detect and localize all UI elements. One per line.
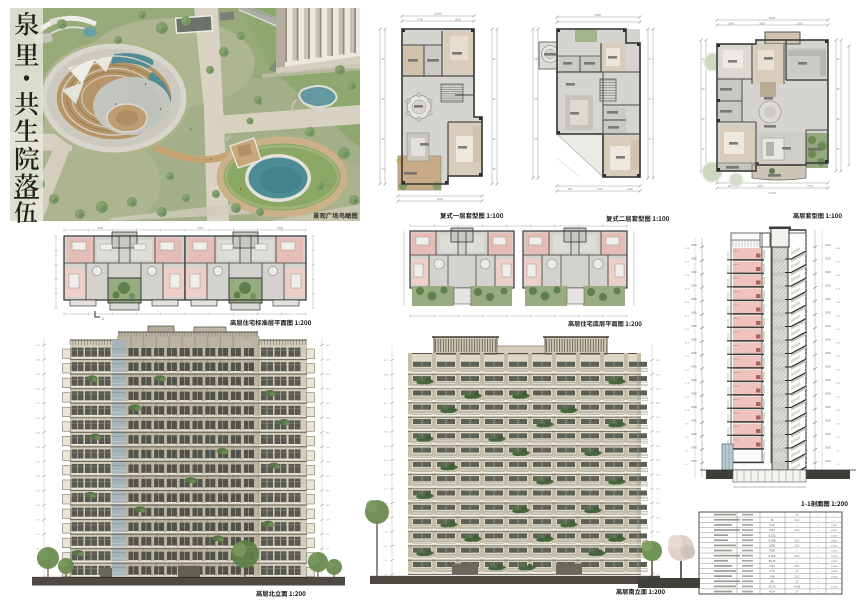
svg-text:20.5: 20.5 bbox=[685, 370, 690, 372]
svg-text:0.0651: 0.0651 bbox=[831, 546, 838, 548]
svg-text:23.2: 23.2 bbox=[795, 539, 800, 542]
svg-text:36: 36 bbox=[493, 57, 496, 61]
svg-text:35.0: 35.0 bbox=[326, 389, 331, 391]
svg-text:43.7: 43.7 bbox=[326, 345, 331, 347]
svg-text:43.7: 43.7 bbox=[685, 262, 690, 264]
svg-text:2900: 2900 bbox=[825, 270, 831, 274]
svg-text:8.9: 8.9 bbox=[685, 424, 689, 426]
svg-text:23.2: 23.2 bbox=[795, 575, 800, 578]
svg-text:14.7: 14.7 bbox=[36, 491, 41, 493]
svg-text:9800: 9800 bbox=[769, 16, 776, 20]
svg-text:37.9: 37.9 bbox=[656, 389, 661, 391]
svg-text:1.5420: 1.5420 bbox=[831, 576, 838, 578]
svg-text:2900: 2900 bbox=[691, 297, 697, 301]
svg-text:2900: 2900 bbox=[825, 284, 831, 288]
svg-text:2900: 2900 bbox=[691, 405, 697, 409]
svg-text:1: 1 bbox=[102, 317, 104, 321]
svg-text:23.4: 23.4 bbox=[326, 447, 331, 449]
svg-text:35.0: 35.0 bbox=[656, 403, 661, 405]
svg-text:23.2: 23.2 bbox=[795, 555, 800, 558]
svg-text:37.9: 37.9 bbox=[384, 389, 389, 391]
svg-text:36.45: 36.45 bbox=[769, 559, 776, 563]
svg-text:8.9: 8.9 bbox=[384, 532, 388, 534]
svg-text:14.7: 14.7 bbox=[685, 397, 690, 399]
svg-text:2900: 2900 bbox=[825, 311, 831, 315]
svg-text:43.7: 43.7 bbox=[836, 262, 841, 264]
svg-text:2900: 2900 bbox=[691, 270, 697, 274]
svg-text:29.2: 29.2 bbox=[836, 329, 841, 331]
svg-text:32.1: 32.1 bbox=[685, 316, 690, 318]
svg-text:36: 36 bbox=[837, 147, 840, 151]
svg-text:6.0: 6.0 bbox=[836, 437, 840, 439]
svg-text:23.4: 23.4 bbox=[836, 356, 841, 358]
svg-text:0.2: 0.2 bbox=[836, 464, 840, 466]
svg-text:8400: 8400 bbox=[437, 197, 444, 201]
svg-text:2900: 2900 bbox=[825, 365, 831, 369]
svg-text:8.9: 8.9 bbox=[836, 424, 840, 426]
svg-text:2900: 2900 bbox=[825, 446, 831, 450]
svg-text:46.6: 46.6 bbox=[836, 248, 841, 250]
svg-text:20.5: 20.5 bbox=[36, 461, 41, 463]
svg-text:1.5420: 1.5420 bbox=[831, 587, 838, 589]
svg-text:26.3: 26.3 bbox=[656, 446, 661, 448]
svg-text:8.9: 8.9 bbox=[36, 520, 40, 522]
svg-text:6.0: 6.0 bbox=[685, 437, 689, 439]
svg-text:14.7: 14.7 bbox=[656, 503, 661, 505]
svg-text:26.3: 26.3 bbox=[36, 432, 41, 434]
svg-text:17.6: 17.6 bbox=[656, 489, 661, 491]
svg-text:29.2: 29.2 bbox=[656, 432, 661, 434]
svg-text:3.1: 3.1 bbox=[326, 549, 330, 551]
svg-text:2900: 2900 bbox=[691, 459, 697, 463]
svg-text:6.0: 6.0 bbox=[384, 546, 388, 548]
svg-text:29.2: 29.2 bbox=[36, 418, 41, 420]
svg-text:26.3: 26.3 bbox=[384, 446, 389, 448]
svg-text:33.73: 33.73 bbox=[769, 585, 776, 589]
svg-text:3200: 3200 bbox=[277, 226, 284, 230]
svg-text:14400: 14400 bbox=[768, 191, 776, 195]
svg-text:2400: 2400 bbox=[728, 22, 734, 26]
svg-text:23.4: 23.4 bbox=[36, 447, 41, 449]
svg-text:11.8: 11.8 bbox=[685, 410, 690, 412]
svg-text:1.5420: 1.5420 bbox=[831, 571, 838, 573]
svg-text:37.9: 37.9 bbox=[36, 374, 41, 376]
svg-text:23.2: 23.2 bbox=[795, 519, 800, 522]
svg-text:15: 15 bbox=[771, 518, 774, 522]
svg-text:2900: 2900 bbox=[691, 365, 697, 369]
svg-text:46.6: 46.6 bbox=[685, 248, 690, 250]
svg-text:11.8: 11.8 bbox=[656, 517, 661, 519]
svg-text:40.8: 40.8 bbox=[685, 275, 690, 277]
svg-text:2900: 2900 bbox=[691, 378, 697, 382]
svg-text:17.6: 17.6 bbox=[685, 383, 690, 385]
svg-text:43.7: 43.7 bbox=[36, 345, 41, 347]
svg-text:2900: 2900 bbox=[691, 324, 697, 328]
svg-text:40.8: 40.8 bbox=[836, 275, 841, 277]
svg-text:33: 33 bbox=[702, 117, 705, 121]
svg-text:4200: 4200 bbox=[757, 184, 763, 188]
svg-text:33: 33 bbox=[702, 87, 705, 91]
svg-text:1.5420: 1.5420 bbox=[831, 551, 838, 553]
svg-text:7400: 7400 bbox=[97, 226, 104, 230]
svg-text:30: 30 bbox=[382, 97, 385, 101]
svg-text:6100: 6100 bbox=[434, 12, 441, 16]
svg-text:26.3: 26.3 bbox=[836, 343, 841, 345]
svg-text:2400: 2400 bbox=[627, 187, 633, 191]
svg-text:36: 36 bbox=[837, 87, 840, 91]
svg-text:1700: 1700 bbox=[417, 18, 424, 22]
svg-text:0.0651: 0.0651 bbox=[831, 530, 838, 532]
svg-text:40.8: 40.8 bbox=[384, 374, 389, 376]
svg-text:900: 900 bbox=[568, 187, 573, 191]
svg-text:2800: 2800 bbox=[759, 22, 765, 26]
svg-text:17: 17 bbox=[649, 137, 652, 141]
svg-text:28: 28 bbox=[535, 137, 538, 141]
svg-text:8400: 8400 bbox=[595, 13, 602, 17]
svg-text:26.3: 26.3 bbox=[685, 343, 690, 345]
svg-text:0.2: 0.2 bbox=[685, 464, 689, 466]
svg-text:2900: 2900 bbox=[691, 243, 697, 247]
svg-text:3.1: 3.1 bbox=[36, 549, 40, 551]
svg-text:7400: 7400 bbox=[197, 226, 204, 230]
svg-text:3600: 3600 bbox=[797, 22, 803, 26]
svg-text:0.0651: 0.0651 bbox=[831, 540, 838, 542]
svg-text:0.344: 0.344 bbox=[769, 554, 776, 558]
svg-text:2900: 2900 bbox=[691, 419, 697, 423]
svg-text:20.5: 20.5 bbox=[836, 370, 841, 372]
svg-text:35.0: 35.0 bbox=[384, 403, 389, 405]
svg-text:36: 36 bbox=[837, 117, 840, 121]
svg-text:30: 30 bbox=[382, 137, 385, 141]
svg-text:2900: 2900 bbox=[825, 243, 831, 247]
svg-text:6.94: 6.94 bbox=[769, 564, 775, 568]
svg-text:32.1: 32.1 bbox=[384, 417, 389, 419]
svg-text:37.9: 37.9 bbox=[326, 374, 331, 376]
svg-text:11.8: 11.8 bbox=[36, 505, 41, 507]
svg-text:36: 36 bbox=[493, 167, 496, 171]
svg-text:32.1: 32.1 bbox=[326, 403, 331, 405]
svg-text:40.8: 40.8 bbox=[656, 374, 661, 376]
svg-text:2900: 2900 bbox=[691, 257, 697, 261]
svg-text:36: 36 bbox=[493, 137, 496, 141]
svg-text:4.452: 4.452 bbox=[794, 586, 801, 589]
svg-text:2900: 2900 bbox=[825, 297, 831, 301]
svg-text:6.0: 6.0 bbox=[36, 534, 40, 536]
svg-text:2900: 2900 bbox=[691, 392, 697, 396]
svg-text:2900: 2900 bbox=[825, 257, 831, 261]
svg-text:2900: 2900 bbox=[825, 338, 831, 342]
svg-text:8.9: 8.9 bbox=[326, 520, 330, 522]
svg-text:17: 17 bbox=[649, 57, 652, 61]
svg-text:6.0: 6.0 bbox=[326, 534, 330, 536]
svg-text:2900: 2900 bbox=[825, 405, 831, 409]
svg-text:11.8: 11.8 bbox=[836, 410, 841, 412]
svg-text:35.0: 35.0 bbox=[36, 389, 41, 391]
svg-text:1.98: 1.98 bbox=[769, 574, 775, 578]
svg-text:43.7: 43.7 bbox=[384, 360, 389, 362]
svg-text:29.2: 29.2 bbox=[685, 329, 690, 331]
svg-text:3.1: 3.1 bbox=[384, 560, 388, 562]
svg-text:9.338: 9.338 bbox=[769, 538, 776, 542]
svg-text:2900: 2900 bbox=[825, 432, 831, 436]
svg-text:2900: 2900 bbox=[825, 459, 831, 463]
svg-text:6.502: 6.502 bbox=[831, 525, 837, 527]
svg-text:37.9: 37.9 bbox=[685, 289, 690, 291]
svg-text:5.252: 5.252 bbox=[769, 533, 776, 537]
svg-text:14.7: 14.7 bbox=[836, 397, 841, 399]
svg-text:42.4: 42.4 bbox=[769, 590, 775, 594]
svg-text:2900: 2900 bbox=[825, 324, 831, 328]
svg-text:0.73: 0.73 bbox=[769, 569, 775, 573]
svg-text:3.1: 3.1 bbox=[685, 451, 689, 453]
svg-text:2900: 2900 bbox=[691, 351, 697, 355]
svg-text:2296: 2296 bbox=[769, 544, 775, 548]
svg-text:7000: 7000 bbox=[769, 549, 775, 553]
svg-text:2900: 2900 bbox=[825, 378, 831, 382]
svg-text:35.0: 35.0 bbox=[685, 302, 690, 304]
svg-text:2900: 2900 bbox=[691, 338, 697, 342]
svg-text:2900: 2900 bbox=[691, 311, 697, 315]
svg-text:30: 30 bbox=[382, 167, 385, 171]
svg-text:29.2: 29.2 bbox=[384, 432, 389, 434]
svg-text:1.5420: 1.5420 bbox=[831, 561, 838, 563]
svg-text:2900: 2900 bbox=[691, 284, 697, 288]
svg-text:2900: 2900 bbox=[825, 392, 831, 396]
svg-text:26.3: 26.3 bbox=[326, 432, 331, 434]
svg-text:40.8: 40.8 bbox=[36, 360, 41, 362]
svg-text:28: 28 bbox=[535, 57, 538, 61]
svg-text:33: 33 bbox=[702, 147, 705, 151]
svg-text:2900: 2900 bbox=[691, 446, 697, 450]
svg-text:23.4: 23.4 bbox=[384, 460, 389, 462]
svg-text:40.8: 40.8 bbox=[326, 360, 331, 362]
svg-text:1.5420: 1.5420 bbox=[831, 556, 838, 558]
svg-text:36: 36 bbox=[771, 579, 774, 583]
svg-text:29.2: 29.2 bbox=[326, 418, 331, 420]
svg-text:20.5: 20.5 bbox=[656, 474, 661, 476]
svg-text:30: 30 bbox=[382, 57, 385, 61]
svg-text:2.11: 2.11 bbox=[769, 523, 775, 527]
svg-text:17.6: 17.6 bbox=[36, 476, 41, 478]
svg-text:11.8: 11.8 bbox=[326, 505, 331, 507]
svg-text:37.9: 37.9 bbox=[836, 289, 841, 291]
svg-text:17: 17 bbox=[649, 97, 652, 101]
svg-text:2600: 2600 bbox=[455, 18, 462, 22]
svg-text:36: 36 bbox=[837, 57, 840, 61]
svg-text:32.1: 32.1 bbox=[36, 403, 41, 405]
svg-text:23.4: 23.4 bbox=[656, 460, 661, 462]
svg-text:23.4: 23.4 bbox=[685, 356, 690, 358]
svg-text:32.1: 32.1 bbox=[656, 417, 661, 419]
svg-text:14.7: 14.7 bbox=[326, 491, 331, 493]
svg-text:2900: 2900 bbox=[825, 419, 831, 423]
svg-text:3700: 3700 bbox=[807, 184, 813, 188]
svg-text:9.94: 9.94 bbox=[769, 528, 775, 532]
svg-text:20.5: 20.5 bbox=[326, 461, 331, 463]
svg-text:2900: 2900 bbox=[825, 351, 831, 355]
svg-text:43.7: 43.7 bbox=[656, 360, 661, 362]
svg-text:28: 28 bbox=[535, 97, 538, 101]
svg-text:17.6: 17.6 bbox=[836, 383, 841, 385]
svg-text:3.1: 3.1 bbox=[836, 451, 840, 453]
svg-text:35.0: 35.0 bbox=[836, 302, 841, 304]
svg-text:32.1: 32.1 bbox=[836, 316, 841, 318]
svg-text:1.5420: 1.5420 bbox=[831, 535, 838, 537]
svg-text:20.5: 20.5 bbox=[384, 474, 389, 476]
svg-text:17.6: 17.6 bbox=[384, 489, 389, 491]
svg-text:23.2: 23.2 bbox=[795, 565, 800, 568]
svg-text:5100: 5100 bbox=[597, 187, 603, 191]
svg-text:23.2: 23.2 bbox=[795, 545, 800, 548]
svg-text:36: 36 bbox=[493, 97, 496, 101]
svg-text:2900: 2900 bbox=[691, 432, 697, 436]
svg-text:1.5420: 1.5420 bbox=[831, 566, 838, 568]
svg-text:23.2: 23.2 bbox=[795, 529, 800, 532]
svg-text:17.6: 17.6 bbox=[326, 476, 331, 478]
